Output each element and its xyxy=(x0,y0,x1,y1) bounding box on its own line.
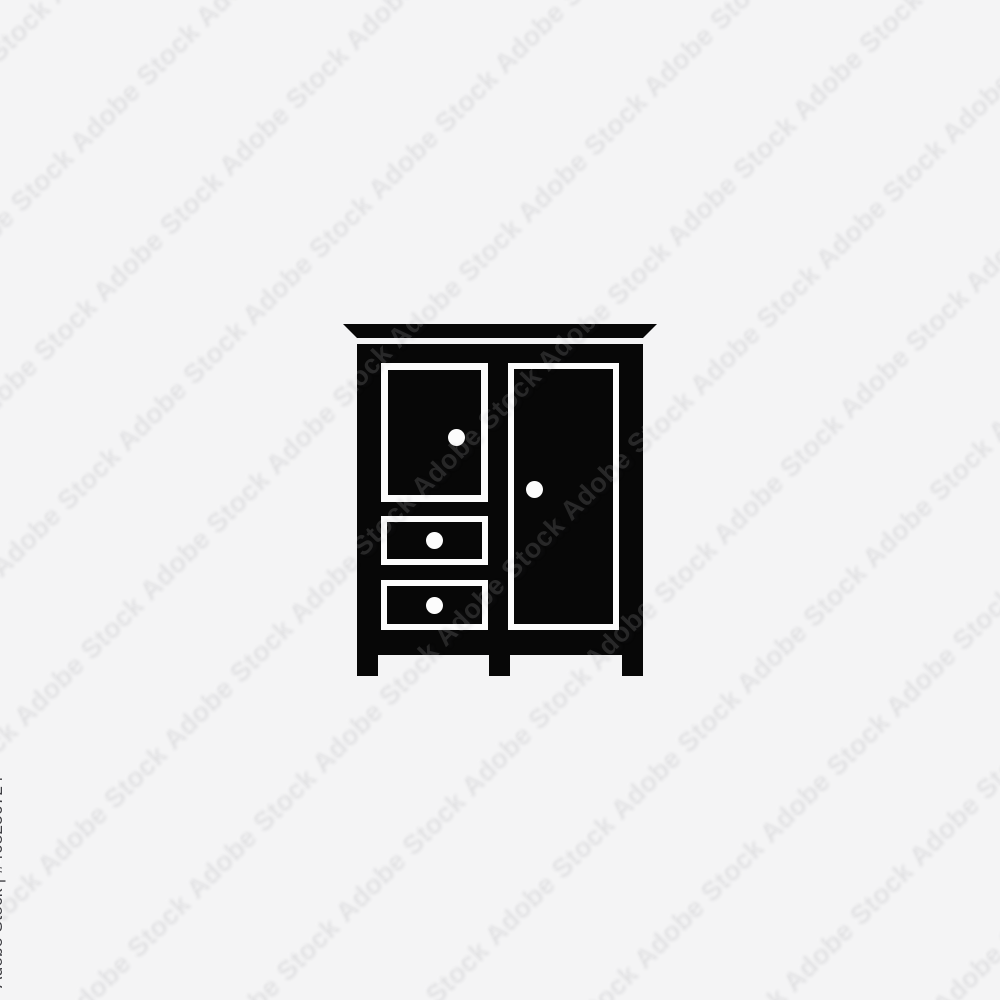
wardrobe-left-door xyxy=(381,363,488,502)
wardrobe-right-door xyxy=(508,363,619,630)
stock-image-canvas: Adobe StockAdobe StockAdobe StockAdobe S… xyxy=(0,0,1000,1000)
drawer-top-knob-icon xyxy=(426,532,443,549)
wardrobe-leg-left xyxy=(357,655,378,676)
wardrobe-drawer-bottom xyxy=(381,580,488,630)
wardrobe-leg-center xyxy=(489,655,510,676)
left-door-knob-icon xyxy=(448,429,465,446)
watermark-id-text: Adobe Stock | #468256724 xyxy=(0,776,7,988)
wardrobe-icon xyxy=(0,0,1000,1000)
wardrobe-leg-right xyxy=(622,655,643,676)
wardrobe-cornice xyxy=(343,324,657,338)
right-door-knob-icon xyxy=(526,481,543,498)
wardrobe-drawer-top xyxy=(381,516,488,565)
wardrobe-body xyxy=(357,344,643,655)
drawer-bottom-knob-icon xyxy=(426,597,443,614)
